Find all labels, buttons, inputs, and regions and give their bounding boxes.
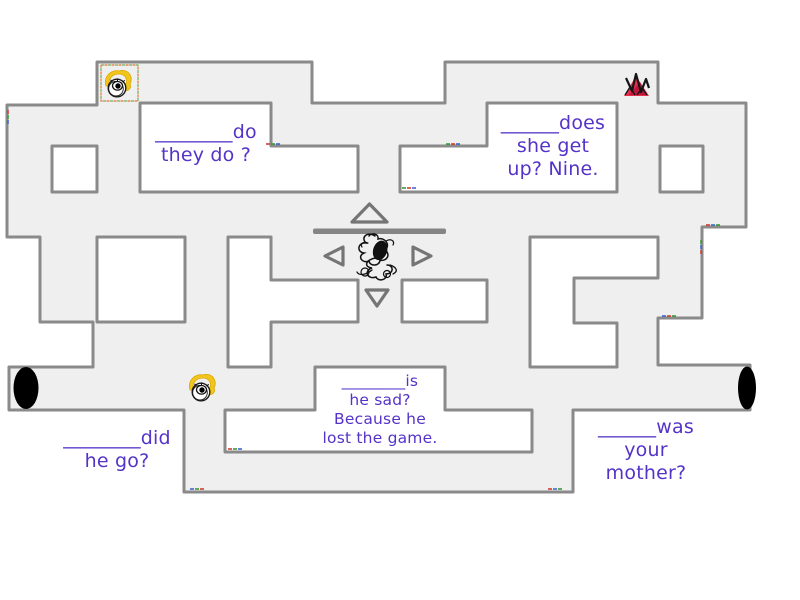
tunnel-exit-right-icon — [738, 367, 756, 410]
question-line: ________do — [155, 121, 257, 144]
question-line: ________did — [63, 427, 171, 450]
question-where-did-he-go: ________did he go? — [63, 427, 171, 473]
question-line: ________is — [323, 372, 438, 391]
center-wall-bar — [313, 229, 446, 235]
question-line: he sad? — [323, 391, 438, 410]
question-line: she get — [501, 135, 605, 158]
question-line: up? Nine. — [501, 158, 605, 181]
question-line: Because he — [323, 410, 438, 429]
question-line: mother? — [598, 462, 694, 485]
question-line: lost the game. — [323, 429, 438, 448]
question-line: he go? — [63, 450, 171, 473]
maze-game-board: ________do they do ? ______does she get … — [0, 0, 800, 600]
question-line: ______was — [598, 416, 694, 439]
question-who-was-your-mother: ______was your mother? — [598, 416, 694, 485]
question-line: your — [598, 439, 694, 462]
question-when-does-she-get-up: ______does she get up? Nine. — [501, 112, 605, 181]
question-line: ______does — [501, 112, 605, 135]
maze-canvas — [0, 0, 800, 600]
tunnel-exit-left-icon — [14, 367, 39, 409]
question-what-do-they-do: ________do they do ? — [155, 121, 257, 167]
question-why-is-he-sad: ________is he sad? Because he lost the g… — [323, 372, 438, 448]
question-line: they do ? — [155, 144, 257, 167]
